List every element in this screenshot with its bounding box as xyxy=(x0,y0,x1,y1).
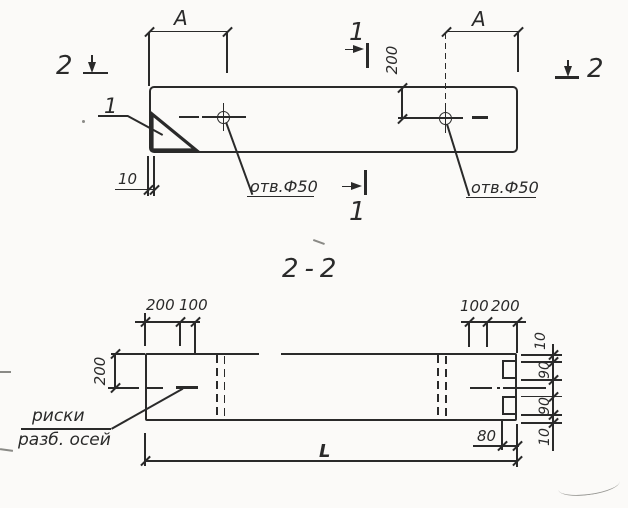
section-mark-2-right-label: 2 xyxy=(587,56,604,82)
axis-dash xyxy=(179,116,199,119)
dim-label-10: 10 xyxy=(118,172,137,187)
extension-line xyxy=(144,313,146,346)
dim-label: 200 xyxy=(491,299,520,314)
section-arrow-right-icon xyxy=(351,182,362,190)
dim-label-a-right: A xyxy=(472,9,486,29)
extension-line xyxy=(468,322,470,347)
extension-line xyxy=(148,32,150,86)
outline-break xyxy=(259,350,281,358)
scan-speck xyxy=(313,239,325,245)
extension-line xyxy=(226,32,228,73)
dim-line-length xyxy=(145,460,517,462)
dim-label-200: 200 xyxy=(375,46,409,74)
end-notch-upper xyxy=(502,360,517,379)
section-beam-outline xyxy=(145,353,517,421)
section-mark-2-left-label: 2 xyxy=(56,53,73,79)
extension-line xyxy=(486,322,488,347)
dim-label: 90 xyxy=(528,392,562,420)
plan-beam-outline xyxy=(149,86,518,153)
scan-speck xyxy=(0,448,13,452)
dim-label: 10 xyxy=(528,423,562,451)
section-mark-1-bottom-label: 1 xyxy=(349,199,366,225)
section-title: 2-2 xyxy=(282,256,342,282)
axis-dash xyxy=(147,387,163,389)
axis-dash xyxy=(472,116,488,119)
section-mark-bar xyxy=(555,76,579,79)
dim-line xyxy=(473,445,519,447)
section-mark-bar xyxy=(364,170,367,195)
joint-line-dashed xyxy=(216,355,218,419)
axis-dot xyxy=(497,387,500,389)
drawing-canvas: A A 200 1 1 2 2 10 1 отв.Ф50 отв.Ф50 2 xyxy=(0,0,628,508)
scan-speck xyxy=(0,371,11,373)
dim-label-a-left: A xyxy=(174,8,188,28)
axis-note-line2: разб. осей xyxy=(18,432,111,449)
section-arrow-right-icon xyxy=(353,45,364,53)
section-mark-bar xyxy=(83,72,108,75)
dim-label: 100 xyxy=(460,299,489,314)
joint-line-dashed xyxy=(224,356,226,419)
section-mark-1-top-label: 1 xyxy=(349,19,365,44)
leader-shelf xyxy=(98,115,128,117)
hole-left xyxy=(217,111,230,124)
joint-line-dashed xyxy=(445,356,447,419)
dim-label: 200 xyxy=(83,357,117,385)
dim-label: 200 xyxy=(146,298,175,313)
extension-line xyxy=(179,322,181,346)
dim-label-length: L xyxy=(319,443,330,461)
extension-line xyxy=(516,321,518,353)
dim-line-a-left xyxy=(149,31,228,33)
axis-dash xyxy=(470,387,492,389)
detail-ref-label: 1 xyxy=(104,96,117,117)
hole-label-right: отв.Ф50 xyxy=(471,180,539,196)
dim-label: 100 xyxy=(179,298,208,313)
end-notch-lower xyxy=(502,396,517,415)
scan-speck xyxy=(82,120,85,123)
axis-note-line1: риски xyxy=(32,408,85,425)
dim-line-200 xyxy=(401,86,403,119)
dim-label: 10 xyxy=(524,327,558,355)
dim-label: 90 xyxy=(528,356,562,384)
joint-line-dashed xyxy=(437,355,439,419)
section-mark-bar xyxy=(366,43,369,68)
hole-right xyxy=(439,112,452,125)
axis-dash xyxy=(503,387,546,389)
extension-line xyxy=(517,32,519,72)
scan-speck xyxy=(557,472,621,499)
dim-label-80: 80 xyxy=(477,429,496,444)
hole-label-left: отв.Ф50 xyxy=(250,179,318,195)
extension-line-dashed xyxy=(445,33,447,103)
extension-line xyxy=(194,322,196,353)
